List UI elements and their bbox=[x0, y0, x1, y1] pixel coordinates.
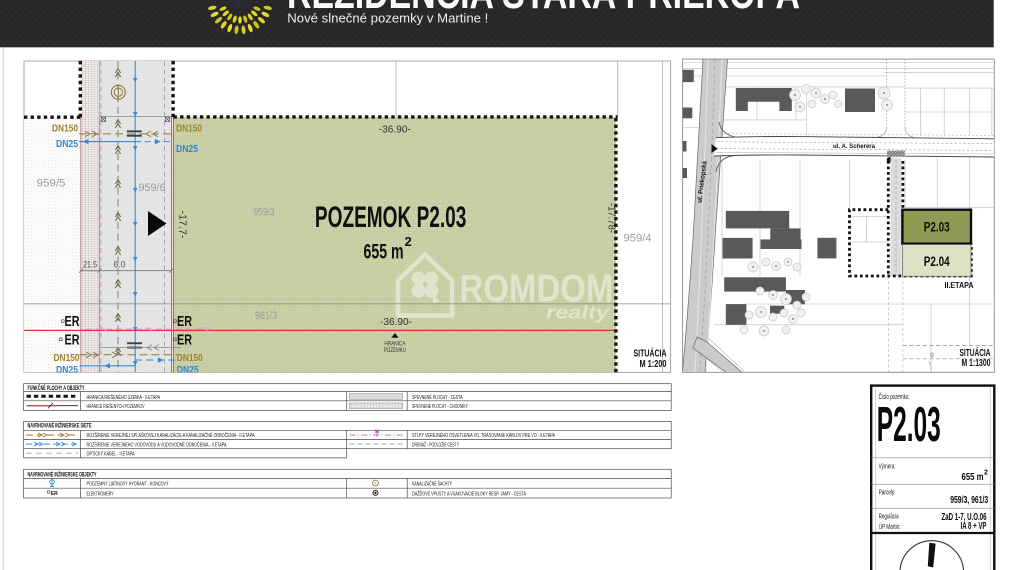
svg-text:ER: ER bbox=[65, 331, 80, 348]
svg-text:NAVRHOVANÉ INŽINIERSKE OBJEKTY: NAVRHOVANÉ INŽINIERSKE OBJEKTY bbox=[28, 470, 98, 478]
svg-text:2: 2 bbox=[405, 234, 412, 249]
svg-text:POZEMKU: POZEMKU bbox=[384, 348, 406, 354]
svg-text:ER: ER bbox=[65, 313, 80, 330]
svg-text:DN150: DN150 bbox=[54, 352, 80, 364]
svg-text:M 1:1300: M 1:1300 bbox=[962, 358, 991, 369]
svg-text:Výmera:: Výmera: bbox=[879, 461, 896, 470]
svg-text:655 m: 655 m bbox=[962, 471, 984, 483]
svg-text:DAŽĎOVÉ VPUSTY A VSAKOVACIE BL: DAŽĎOVÉ VPUSTY A VSAKOVACIE BLOKY RESP. … bbox=[412, 489, 526, 497]
svg-text:FUNKČNÉ PLOCHY A OBJEKTY: FUNKČNÉ PLOCHY A OBJEKTY bbox=[28, 384, 86, 392]
svg-text:ER: ER bbox=[177, 331, 192, 348]
svg-text:Regulácia: Regulácia bbox=[879, 511, 899, 520]
svg-text:M 1:200: M 1:200 bbox=[640, 359, 667, 370]
svg-text:PODZEMNÝ LIATINOVÝ HYDRANT - K: PODZEMNÝ LIATINOVÝ HYDRANT - KONCOVÝ bbox=[87, 480, 169, 487]
svg-text:655 m: 655 m bbox=[364, 239, 404, 263]
svg-text:HRANICA RIEŠENÉHO ÚZEMIA - II.: HRANICA RIEŠENÉHO ÚZEMIA - II.ETAPA bbox=[87, 394, 161, 401]
svg-text:P2.03: P2.03 bbox=[877, 398, 941, 452]
svg-text:961/3: 961/3 bbox=[255, 310, 277, 322]
svg-text:ul. A. Scherera: ul. A. Scherera bbox=[833, 143, 875, 150]
svg-text:SITUÁCIA: SITUÁCIA bbox=[634, 347, 667, 359]
svg-text:959/5: 959/5 bbox=[37, 178, 66, 190]
svg-text:DRENÁŽ - PODLOŽIE CESTY: DRENÁŽ - PODLOŽIE CESTY bbox=[412, 440, 459, 448]
svg-text:ROZŠÍRENIE VEREJNEJ SPLAŠKOVEJ: ROZŠÍRENIE VEREJNEJ SPLAŠKOVEJ KANALIZÁC… bbox=[87, 432, 255, 439]
svg-text:SPEVNENÉ PLOCHY - CESTA: SPEVNENÉ PLOCHY - CESTA bbox=[412, 394, 463, 401]
svg-text:ÚP Martin:: ÚP Martin: bbox=[879, 522, 901, 531]
svg-text:959/4: 959/4 bbox=[624, 233, 652, 245]
svg-text:Parcely:: Parcely: bbox=[879, 488, 896, 497]
svg-text:959/3, 961/3: 959/3, 961/3 bbox=[950, 495, 988, 506]
svg-text:OPTICKÝ KÁBEL - II.ETAPA: OPTICKÝ KÁBEL - II.ETAPA bbox=[87, 451, 135, 458]
svg-text:2: 2 bbox=[984, 470, 988, 477]
svg-text:realty: realty bbox=[546, 303, 610, 323]
svg-text:II.ETAPA: II.ETAPA bbox=[945, 281, 974, 290]
svg-text:POZEMOK P2.03: POZEMOK P2.03 bbox=[315, 201, 467, 234]
svg-text:STĹPY VEREJNÉHO OSVETLENIA VO,: STĹPY VEREJNÉHO OSVETLENIA VO, TRASOVANI… bbox=[412, 432, 555, 439]
svg-text:-36.90-: -36.90- bbox=[379, 124, 411, 135]
svg-text:ER: ER bbox=[51, 491, 58, 497]
svg-text:DN150: DN150 bbox=[177, 352, 203, 364]
svg-text:SPEVNENÉ PLOCHY - CHODNÍKY: SPEVNENÉ PLOCHY - CHODNÍKY bbox=[412, 403, 468, 410]
svg-text:21.5: 21.5 bbox=[83, 259, 97, 270]
svg-text:IA 8 + VP: IA 8 + VP bbox=[961, 521, 987, 532]
svg-text:HRANICE RIEŠENÝCH POZEMKOV: HRANICE RIEŠENÝCH POZEMKOV bbox=[87, 403, 145, 410]
svg-text:DN25: DN25 bbox=[56, 138, 78, 150]
svg-text:Nové slnečné pozemky v Martine: Nové slnečné pozemky v Martine ! bbox=[287, 10, 488, 25]
svg-text:KANALIZAČNÉ ŠACHTY: KANALIZAČNÉ ŠACHTY bbox=[412, 480, 452, 487]
svg-text:959/6: 959/6 bbox=[139, 182, 166, 194]
svg-text:ER: ER bbox=[177, 313, 192, 330]
svg-text:NAVRHOVANÉ INŽINIERSKE SIETE: NAVRHOVANÉ INŽINIERSKE SIETE bbox=[28, 422, 92, 430]
svg-text:P2.04: P2.04 bbox=[924, 254, 950, 269]
svg-text:ROZŠÍRENIE VEREJNÉHO VODOVODU: ROZŠÍRENIE VEREJNÉHO VODOVODU A VODOVODN… bbox=[87, 441, 227, 448]
svg-text:DN150: DN150 bbox=[176, 123, 202, 135]
svg-text:HRANICA: HRANICA bbox=[384, 341, 405, 347]
svg-text:P2.03: P2.03 bbox=[924, 220, 950, 235]
svg-text:-17.7-: -17.7- bbox=[177, 211, 188, 239]
svg-text:-36.90-: -36.90- bbox=[380, 317, 412, 328]
svg-text:ELEKTROMERY: ELEKTROMERY bbox=[87, 491, 114, 497]
svg-text:959/3: 959/3 bbox=[254, 207, 275, 219]
svg-text:DN150: DN150 bbox=[52, 123, 78, 135]
svg-text:6.0: 6.0 bbox=[114, 259, 126, 270]
svg-text:DN25: DN25 bbox=[176, 143, 198, 155]
